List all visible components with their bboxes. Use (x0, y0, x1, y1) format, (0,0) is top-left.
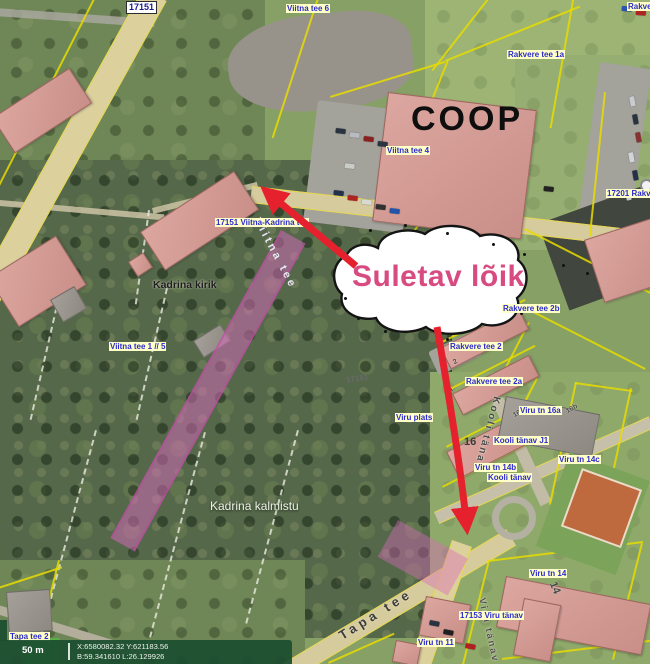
car (543, 186, 553, 192)
label-rakvere-tee-2: Rakvere tee 2 (449, 342, 503, 351)
boundary-marker (446, 232, 449, 235)
label-viitna-tee-4: Viitna tee 4 (386, 146, 430, 155)
label-viru-tn-14: Viru tn 14 (529, 569, 567, 578)
car (333, 190, 344, 196)
boundary-marker (357, 317, 360, 320)
label-viru-plats: Viru plats (395, 413, 433, 422)
label-rakvere-tee-1a: Rakvere tee 1a (507, 50, 565, 59)
boundary-marker (586, 272, 589, 275)
map-canvas[interactable]: Viitna tee Kooli tänav Tapa tee Viru tän… (0, 0, 650, 664)
coordinate-xy: X:6580082.32 Y:621183.56 (77, 643, 168, 651)
car (389, 208, 400, 214)
label-viru-tn-14c: Viru tn 14c (558, 455, 601, 464)
car (347, 195, 358, 201)
label-kadrina-kalmistu: Kadrina kalmistu (209, 500, 300, 514)
label-rakvere-clipped: Rakvere (627, 2, 650, 11)
label-kadrina-kirik: Kadrina kirik (152, 279, 218, 291)
status-bar: 50 m X:6580082.32 Y:621183.56 B:59.34161… (0, 640, 292, 664)
label-viitna-tee-1-5: Viitna tee 1 // 5 (109, 342, 166, 351)
callout-text: Suletav lõik (352, 260, 525, 294)
road-number-badge: 17151 (126, 1, 157, 14)
label-17153-viru-tanav: 17153 Viru tänav (459, 611, 524, 620)
statusbar-divider (68, 643, 70, 660)
coop-store-label: COOP (411, 100, 523, 139)
boundary-marker (384, 330, 387, 333)
car (349, 132, 360, 138)
boundary-marker (523, 253, 526, 256)
label-building-16: 16 (463, 436, 477, 449)
car (335, 128, 346, 134)
label-viru-tn-11: Viru tn 11 (417, 638, 455, 647)
boundary-marker (369, 229, 372, 232)
roundabout (492, 496, 536, 540)
car (375, 204, 386, 210)
car (361, 199, 372, 205)
label-kooli-tanav: Kooli tänav (487, 473, 532, 482)
car (344, 163, 355, 169)
boundary-marker (562, 264, 565, 267)
label-rakvere-tee-2b: Rakvere tee 2b (502, 304, 560, 313)
label-viitna-tee-6: Viitna tee 6 (286, 4, 330, 13)
coordinate-bl: B:59.341610 L:26.129926 (77, 653, 164, 661)
label-kooli-tanav-j1: Kooli tänav J1 (493, 436, 549, 445)
label-17201-rakvere: 17201 Rakv (606, 189, 650, 198)
car (363, 136, 374, 142)
boundary-marker (344, 297, 347, 300)
label-viru-tn-14b: Viru tn 14b (474, 463, 517, 472)
label-viitna-kadrina-tee: 17151 Viitna-Kadrina tee (215, 218, 309, 227)
label-viru-tn-16a: Viru tn 16a (519, 406, 562, 415)
building-tapa-2 (6, 589, 53, 634)
boundary-marker (492, 243, 495, 246)
scale-label: 50 m (22, 645, 44, 656)
scalebar-tab (0, 620, 7, 641)
label-rakvere-tee-2a: Rakvere tee 2a (465, 377, 523, 386)
boundary-marker (446, 338, 449, 341)
boundary-marker (404, 224, 407, 227)
